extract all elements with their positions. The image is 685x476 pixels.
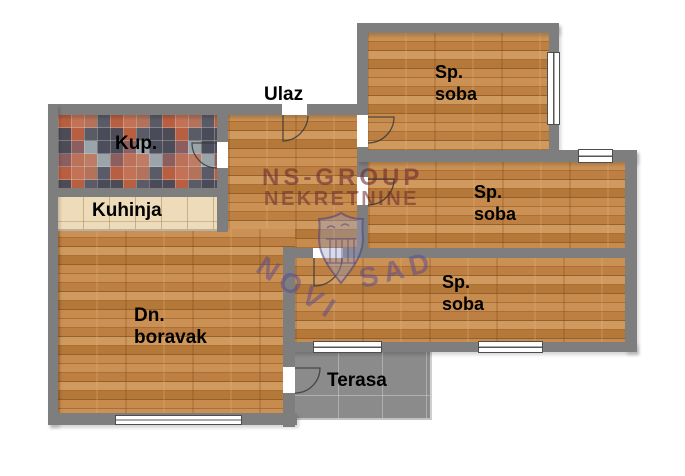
- room-label-bedroom2-line2: soba: [474, 203, 516, 225]
- window-bedroom3-left: [313, 341, 382, 353]
- window-bedroom3-right: [478, 341, 543, 353]
- door-opening-bedroom2: [357, 177, 368, 205]
- room-label-bedroom3: Sp. soba: [442, 271, 484, 315]
- door-opening-terrace: [283, 367, 295, 393]
- door-opening-bathroom: [217, 142, 228, 168]
- floor-plan: Ulaz Kup. Kuhinja Dn. boravak Sp. soba S…: [0, 0, 685, 476]
- window-living-room: [115, 415, 242, 425]
- wall-bathroom-bottom: [48, 188, 217, 197]
- wall-bathroom-right: [217, 104, 228, 232]
- room-label-living-line2: boravak: [134, 327, 207, 349]
- room-label-bathroom: Kup.: [115, 133, 157, 155]
- window-bedroom2: [578, 149, 613, 163]
- room-label-terrace: Terasa: [327, 370, 387, 392]
- room-label-bedroom1-line2: soba: [435, 83, 477, 105]
- wall-bedroom1-top: [357, 23, 559, 33]
- room-label-kitchen: Kuhinja: [92, 200, 162, 222]
- room-label-bedroom3-line2: soba: [442, 293, 484, 315]
- room-label-bedroom2: Sp. soba: [474, 181, 516, 225]
- room-label-living-line1: Dn.: [134, 305, 207, 327]
- wall-living-right: [283, 247, 295, 427]
- door-opening-bedroom1: [357, 115, 368, 147]
- room-label-bedroom3-line1: Sp.: [442, 271, 484, 293]
- door-opening-bedroom3: [313, 248, 343, 258]
- room-label-bedroom1: Sp. soba: [435, 61, 477, 105]
- room-label-bedroom1-line1: Sp.: [435, 61, 477, 83]
- wall-top-left-section: [48, 104, 357, 115]
- room-label-bedroom2-line1: Sp.: [474, 181, 516, 203]
- wall-left-outer: [48, 104, 58, 425]
- window-bedroom1: [547, 52, 560, 125]
- room-label-entrance: Ulaz: [264, 84, 303, 106]
- room-label-living-room: Dn. boravak: [134, 305, 207, 349]
